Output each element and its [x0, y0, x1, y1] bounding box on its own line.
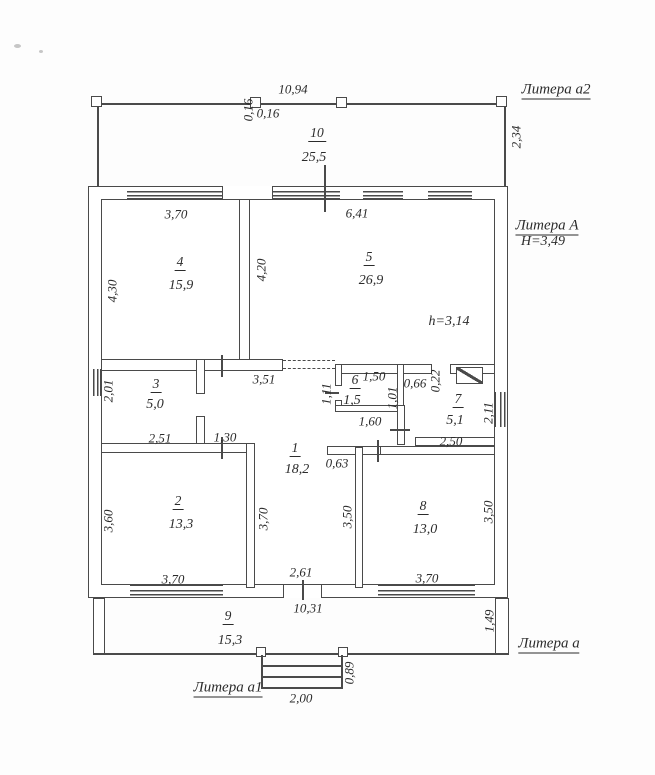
litera-A-label: Литера А	[515, 219, 578, 236]
room-4-number: 4	[175, 255, 186, 271]
partition-room8-top	[380, 446, 495, 455]
window	[495, 392, 508, 427]
veranda-a2-left-wall	[97, 103, 99, 187]
partition-room3-right	[196, 359, 205, 394]
interior-height-label: h=3,14	[429, 315, 470, 329]
dim-room4-width-label: 3,70	[165, 208, 188, 221]
dim-veranda-depth-label: 2,34	[510, 126, 523, 149]
room-6-number: 6	[350, 373, 361, 389]
room-8-area: 13,0	[413, 523, 438, 537]
litera-a-label: Литера а	[518, 637, 579, 654]
dim-room8-width-label: 3,70	[416, 572, 439, 585]
room-1-area: 18,2	[285, 463, 310, 477]
veranda-a2-right-wall	[504, 103, 506, 187]
dim-room2-height-label: 3,60	[102, 510, 115, 533]
partition-room6-left	[335, 364, 342, 386]
door-opening	[222, 186, 273, 199]
partition-room3-right	[196, 416, 205, 445]
dim-post-label: 0,16	[257, 107, 280, 120]
veranda-a-bottom-wall	[93, 653, 509, 655]
porch-steps	[261, 665, 343, 667]
dim-room5-width-label: 6,41	[346, 207, 369, 220]
room-2-number: 2	[173, 494, 184, 510]
partition-room2-right	[246, 443, 255, 588]
dim-post-label: 0,16	[242, 99, 255, 122]
room-2-area: 13,3	[169, 518, 194, 532]
room-10-number: 10	[308, 126, 326, 142]
room-3-number: 3	[151, 377, 162, 393]
tick-mark	[221, 355, 223, 377]
tick-mark	[324, 165, 326, 212]
tick-mark	[302, 580, 304, 600]
dim-room7-height-label: 2,11	[482, 402, 495, 424]
dim-room1-height-label: 3,50	[341, 506, 354, 529]
dim-room2-wall-label: 3,70	[257, 508, 270, 531]
room-1-number: 1	[290, 441, 301, 457]
dim-room6-left-label: 1,11	[320, 383, 333, 405]
dim-room8-height-label: 3,50	[482, 501, 495, 524]
litera-a1-label: Литера а1	[194, 681, 263, 698]
dim-room2-width-label: 3,70	[162, 573, 185, 586]
partition-room2-top	[101, 443, 255, 453]
room-7-area: 5,1	[446, 414, 464, 428]
window	[88, 369, 101, 396]
dim-porch-width-label: 2,00	[290, 692, 313, 705]
window	[428, 186, 472, 199]
floor-plan: 10,94 Литера а2 0,16 0,16 2,34 10 25,5 Л…	[0, 0, 655, 775]
veranda-a-right-wall	[495, 598, 509, 655]
dim-hall-bottom-label: 2,61	[290, 566, 313, 579]
window	[127, 186, 222, 199]
room-7-number: 7	[453, 392, 464, 408]
dim-room6-bottom-label: 1,60	[359, 415, 382, 428]
tick-mark	[390, 429, 410, 431]
veranda-a2-top-wall	[97, 103, 506, 105]
dim-room6-right-label: 1,01	[386, 387, 399, 410]
veranda-a-left-wall	[93, 598, 105, 655]
dim-room3-width-label: 2,51	[149, 432, 172, 445]
dim-total-bottom-label: 10,31	[293, 602, 322, 615]
litera-a2-label: Литера а2	[522, 83, 591, 100]
dim-room6-top-label: 1,50	[363, 370, 386, 383]
window	[130, 585, 223, 598]
room-3-area: 5,0	[146, 398, 164, 412]
room-6-area: 1,5	[343, 394, 361, 408]
room-4-area: 15,9	[169, 279, 194, 293]
litera-A-height-label: Н=3,49	[521, 235, 565, 249]
post	[336, 97, 347, 108]
scan-speck	[39, 50, 43, 53]
dim-room5-height-label: 4,20	[255, 259, 268, 282]
partition-room7-left	[397, 405, 405, 445]
dim-room7-width-label: 2,50	[440, 435, 463, 448]
dim-porch-depth-label: 0,89	[343, 662, 356, 685]
dashed-opening	[283, 368, 335, 369]
dim-1-30-label: 1,30	[214, 431, 237, 444]
window	[363, 186, 403, 199]
room-9-area: 15,3	[218, 634, 243, 648]
dim-0-66-label: 0,66	[404, 377, 427, 390]
dashed-opening	[283, 360, 335, 361]
room-8-number: 8	[418, 499, 429, 515]
room-9-number: 9	[223, 609, 234, 625]
room-5-area: 26,9	[359, 274, 384, 288]
dim-room4-height-label: 4,30	[106, 280, 119, 303]
partition-room4-room5	[239, 199, 250, 367]
porch-steps	[261, 676, 343, 678]
porch-steps	[261, 687, 343, 689]
tick-mark	[377, 440, 379, 462]
dim-total-top-label: 10,94	[278, 83, 307, 96]
window	[378, 585, 475, 598]
dim-0-22-label: 0,22	[429, 370, 442, 393]
room-5-number: 5	[364, 250, 375, 266]
room-10-area: 25,5	[302, 151, 327, 165]
window	[273, 186, 340, 199]
partition-middle	[101, 359, 283, 371]
scan-speck	[14, 44, 21, 48]
partition-room1-room8	[355, 447, 363, 588]
post	[496, 96, 507, 107]
dim-0-63-label: 0,63	[326, 457, 349, 470]
post	[338, 647, 348, 657]
dim-hall-top-label: 3,51	[253, 373, 276, 386]
flue-symbol	[456, 367, 483, 384]
dim-room3-height-label: 2,01	[102, 380, 115, 403]
post	[91, 96, 102, 107]
dim-room9-height-label: 1,49	[483, 610, 496, 633]
